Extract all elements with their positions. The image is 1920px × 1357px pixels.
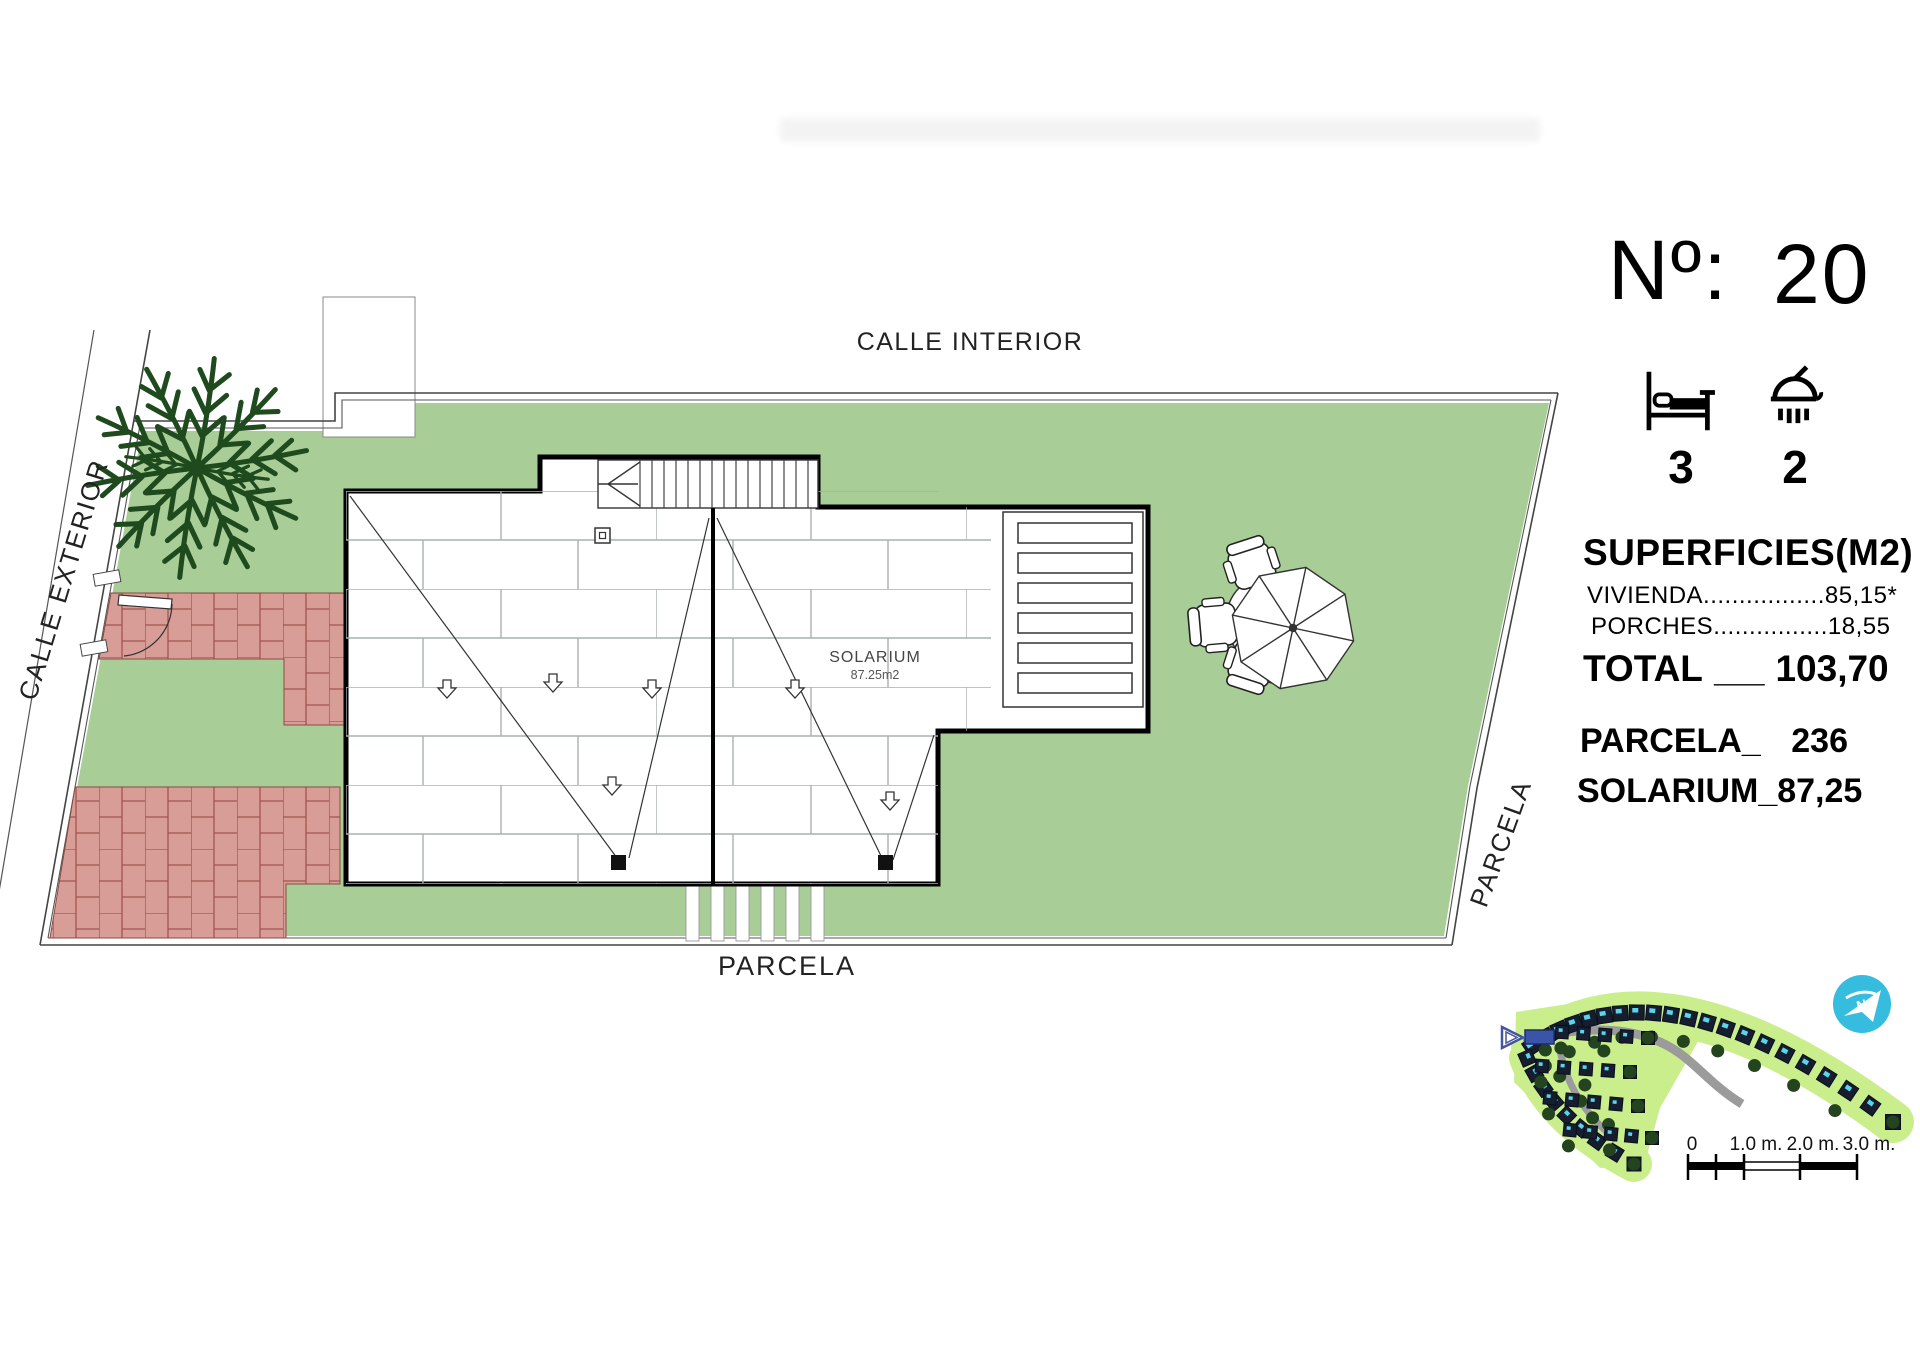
roof-tiles-strip xyxy=(938,507,991,731)
stair xyxy=(598,460,818,508)
parcela-bottom-label: PARCELA xyxy=(718,951,856,981)
scale-bar: 0 1.0 m. 2.0 m. 3.0 m. xyxy=(1687,1134,1896,1180)
pergola xyxy=(1003,512,1143,707)
plot-number-label: Nº: xyxy=(1608,222,1729,319)
solarium-total-label: SOLARIUM_ xyxy=(1577,772,1777,811)
scale-label-3: 3.0 m. xyxy=(1843,1134,1896,1155)
site-plan-page: SOLARIUM 87.25m2 CALLE INTERIOR CALLE EX… xyxy=(0,0,1920,1357)
solarium-area-label: 87.25m2 xyxy=(851,668,900,682)
parcela-row: PARCELA_ 236 xyxy=(1580,722,1848,761)
superficies-title: SUPERFICIES(M2) xyxy=(1583,532,1913,574)
scale-label-1: 1.0 m. xyxy=(1730,1134,1783,1155)
porches-line: PORCHES................18,55 xyxy=(1591,613,1890,641)
calle-interior-label: CALLE INTERIOR xyxy=(857,328,1084,356)
parcela-label: PARCELA_ xyxy=(1580,722,1761,761)
scale-label-2: 2.0 m. xyxy=(1787,1134,1840,1155)
shower-icon xyxy=(1766,362,1824,436)
north-indicator-icon: N xyxy=(1833,975,1891,1033)
roof-drain xyxy=(878,855,893,870)
roof-drain xyxy=(611,855,626,870)
solarium-row: SOLARIUM_ 87,25 xyxy=(1577,772,1853,811)
vivienda-line: VIVIENDA.................85,15* xyxy=(1587,582,1897,610)
mini-map: N xyxy=(1502,975,1901,1171)
solarium-label: SOLARIUM xyxy=(829,649,921,666)
bed-icon xyxy=(1643,368,1719,434)
neighbor-structure xyxy=(323,297,415,437)
total-separator: _ xyxy=(1714,648,1763,690)
scale-label-0: 0 xyxy=(1687,1134,1698,1155)
parcela-value: 236 xyxy=(1791,722,1848,761)
roof-vent xyxy=(595,528,610,543)
total-row: TOTAL _ 103,70 xyxy=(1583,648,1889,690)
plot-number-value: 20 xyxy=(1773,226,1870,323)
total-label: TOTAL xyxy=(1583,648,1703,690)
solarium-total-value: 87,25 xyxy=(1777,772,1862,811)
bedrooms-count: 3 xyxy=(1643,440,1719,494)
total-value: 103,70 xyxy=(1775,648,1888,690)
bathrooms-count: 2 xyxy=(1766,440,1824,494)
parcela-right-label: PARCELA xyxy=(1464,775,1538,911)
